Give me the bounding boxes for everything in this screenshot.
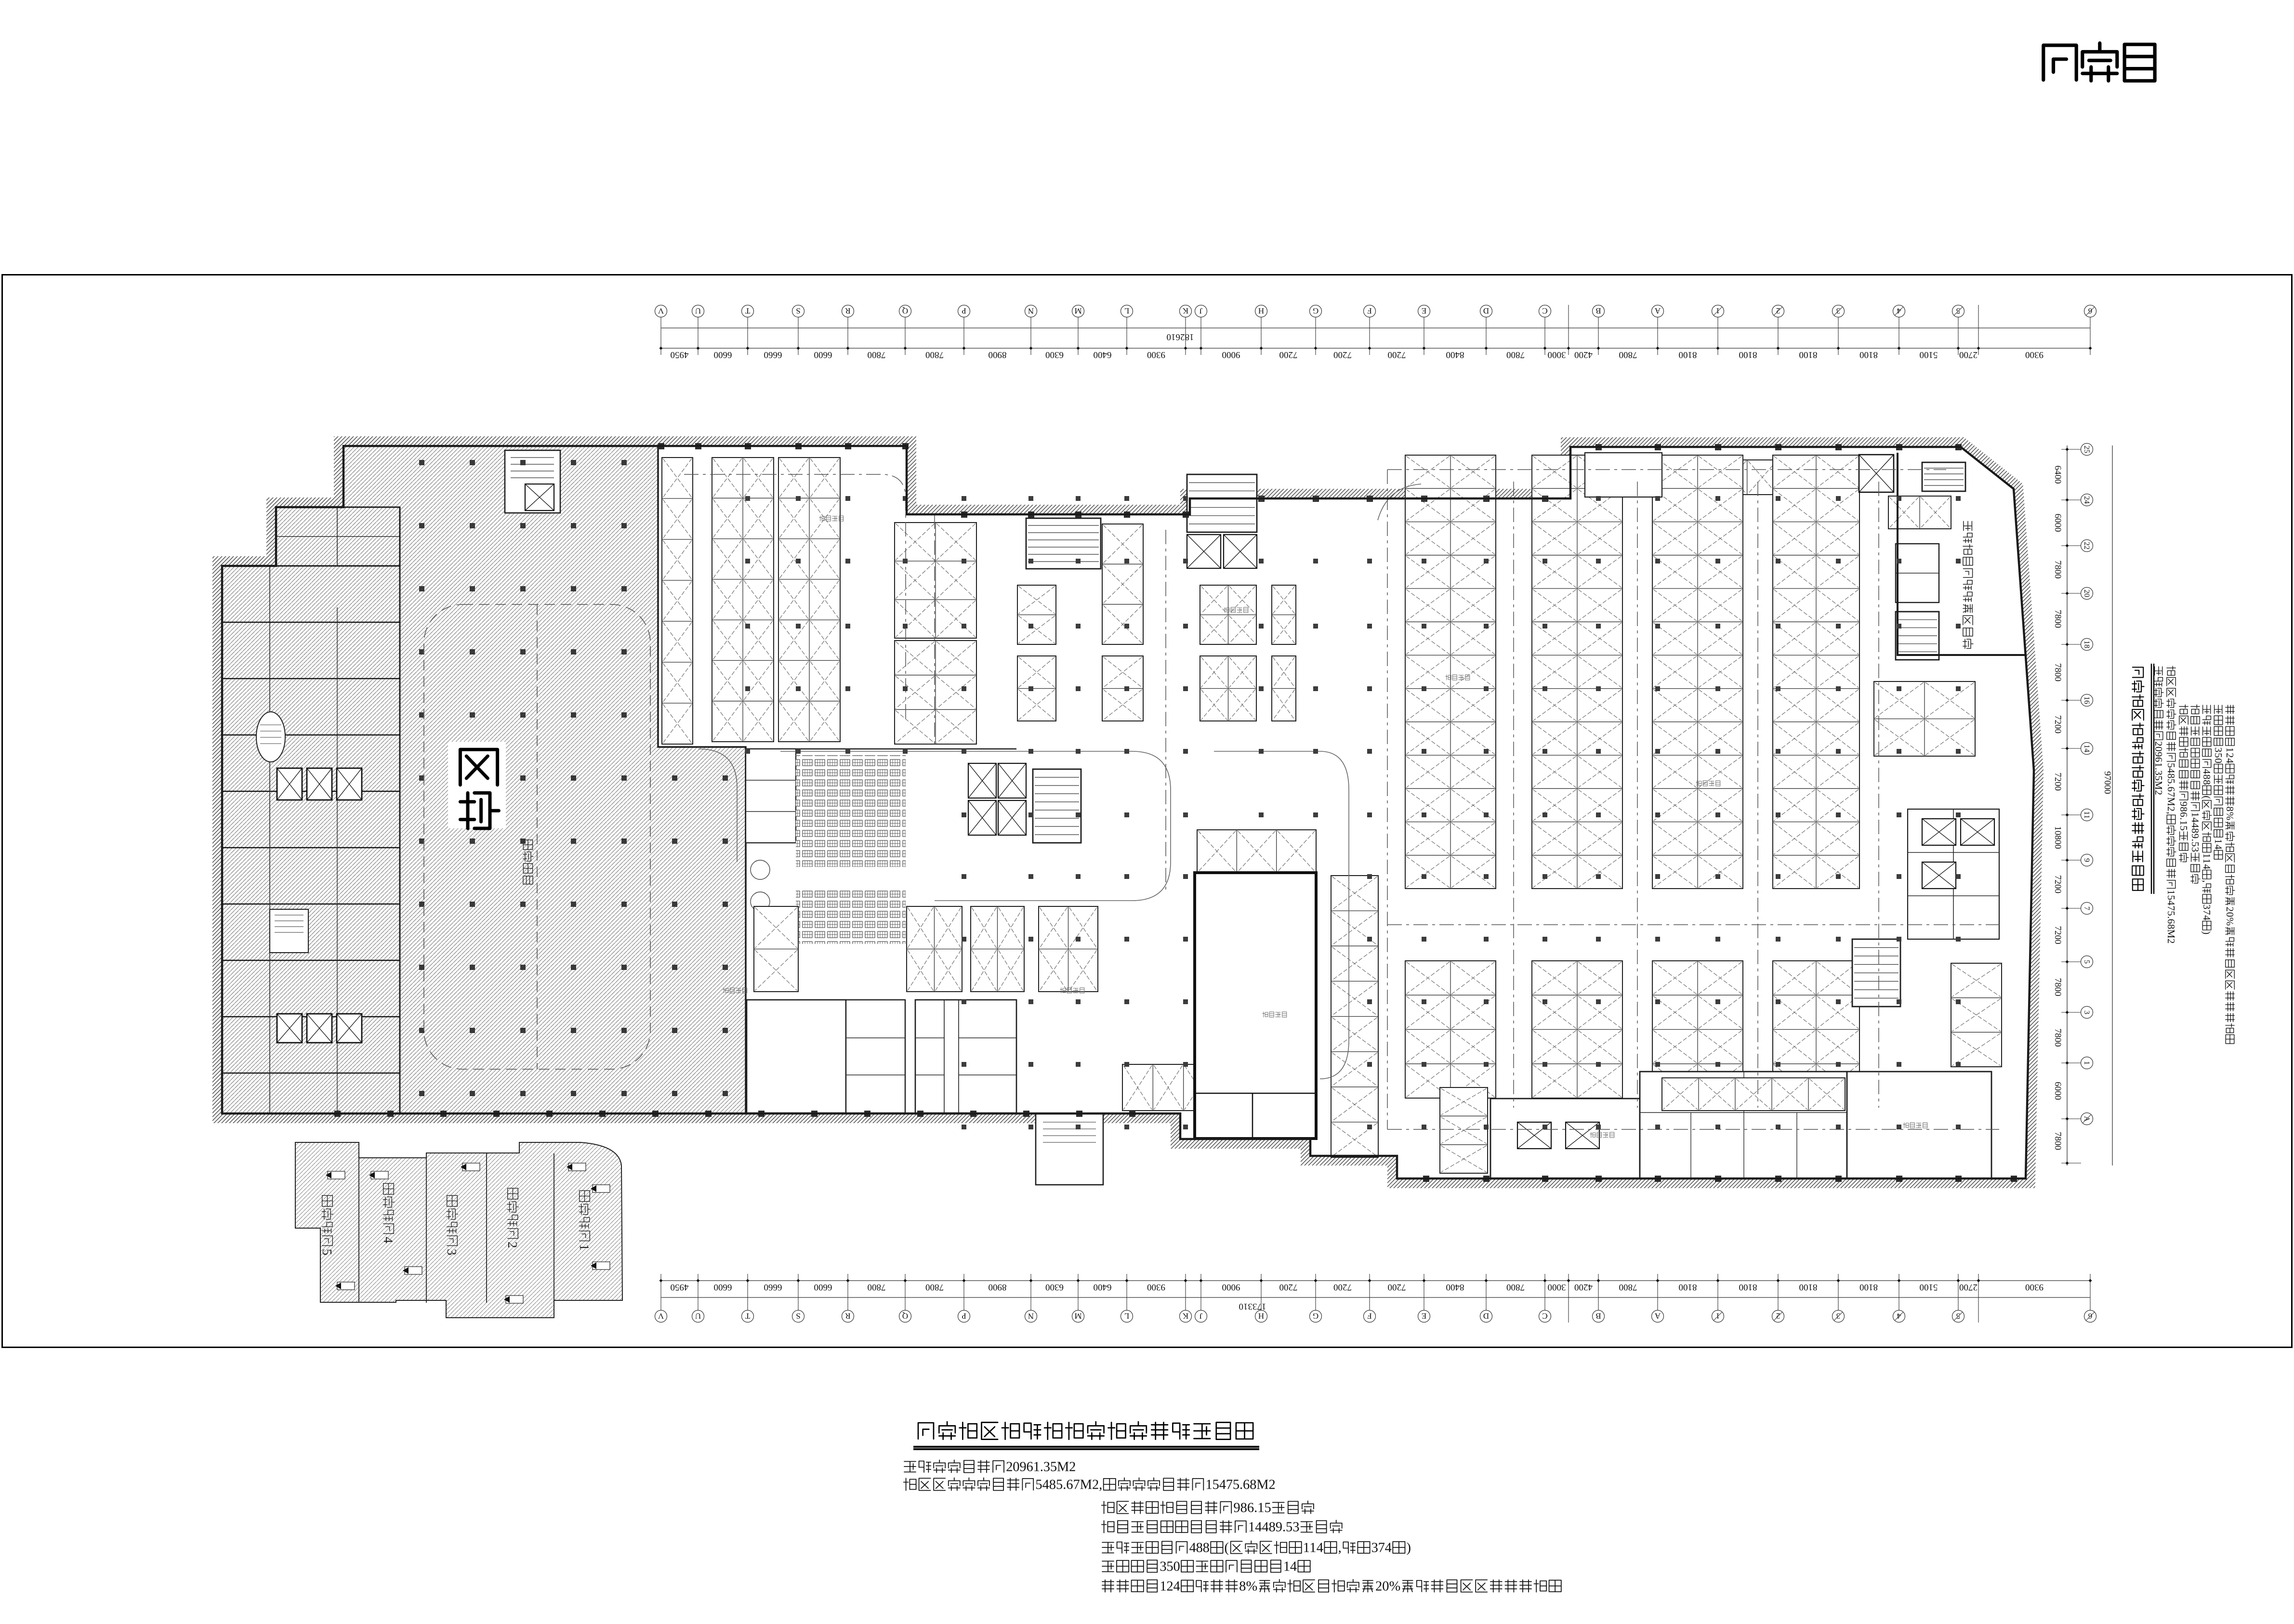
svg-text:U: U [695,1311,701,1321]
svg-text:6600: 6600 [814,350,832,360]
svg-text:H: H [1258,306,1264,315]
svg-text:7200: 7200 [1333,350,1352,360]
svg-text:1: 1 [577,1244,592,1251]
svg-text:(: ( [1225,1541,1229,1556]
svg-text:7200: 7200 [2053,875,2063,893]
svg-text:9: 9 [2083,858,2091,862]
svg-text:3: 3 [2083,1010,2091,1014]
svg-text:1: 1 [2083,1061,2091,1065]
svg-text:350: 350 [2213,747,2224,763]
svg-text:7800: 7800 [2053,610,2063,628]
svg-text:J: J [1199,306,1202,315]
svg-text:7200: 7200 [1388,350,1406,360]
svg-text:4950: 4950 [671,1282,689,1292]
svg-text:8900: 8900 [989,350,1007,360]
svg-text:D: D [1483,306,1489,315]
svg-text:G: G [1313,306,1318,315]
svg-text:K: K [1182,306,1188,315]
svg-text:7800: 7800 [2053,663,2063,681]
svg-text:5100: 5100 [1920,350,1938,360]
svg-text:A: A [1654,306,1661,315]
svg-text:173310: 173310 [1239,1301,1266,1311]
svg-text:5: 5 [320,1249,334,1256]
svg-text:7: 7 [2083,906,2091,910]
svg-text:6300: 6300 [1045,1282,1064,1292]
svg-text:6400: 6400 [1094,1282,1112,1292]
svg-text:7800: 7800 [2053,1029,2063,1047]
svg-text:25: 25 [2083,445,2091,453]
svg-text:6600: 6600 [714,350,732,360]
svg-text:15475.68M2: 15475.68M2 [2165,890,2177,944]
svg-text:15475.68M2: 15475.68M2 [1206,1478,1276,1493]
svg-text:14: 14 [1283,1559,1297,1574]
svg-text:3000: 3000 [1548,1282,1566,1292]
svg-text:2700: 2700 [1959,350,1978,360]
svg-text:2700: 2700 [1959,1282,1978,1292]
svg-text:7800: 7800 [1619,350,1637,360]
svg-text:7200: 7200 [2053,926,2063,944]
svg-text:Q: Q [902,306,908,315]
svg-text:8400: 8400 [1446,1282,1464,1292]
svg-text:V: V [658,306,664,315]
svg-text:124: 124 [1160,1579,1180,1594]
svg-text:8%: 8% [2224,807,2236,821]
svg-text:8100: 8100 [1799,1282,1818,1292]
svg-text:488: 488 [1189,1541,1210,1556]
svg-text:): ) [1407,1541,1411,1556]
svg-text:14: 14 [2083,745,2091,752]
svg-text:6000: 6000 [2053,514,2063,532]
svg-text:4: 4 [381,1237,396,1244]
svg-text:M: M [1074,1311,1081,1321]
svg-text:J: J [1199,1311,1202,1321]
svg-text:374: 374 [1371,1541,1392,1556]
svg-text:488: 488 [2201,769,2213,785]
svg-text:2: 2 [505,1242,520,1248]
svg-text:5485.67M2,: 5485.67M2, [1035,1478,1102,1493]
svg-text:7200: 7200 [2053,773,2063,791]
svg-text:7800: 7800 [868,350,886,360]
svg-text:A: A [1654,1311,1661,1321]
svg-text:V: V [658,1311,664,1321]
svg-text:11: 11 [2083,811,2091,818]
svg-text:7200: 7200 [1279,350,1298,360]
svg-text:8900: 8900 [989,1282,1007,1292]
svg-text:9000: 9000 [1222,1282,1240,1292]
svg-text:8100: 8100 [1799,350,1818,360]
svg-text:5: 5 [2083,960,2091,964]
svg-text:374: 374 [2201,904,2213,921]
svg-text:7200: 7200 [1279,1282,1298,1292]
svg-text:6400: 6400 [2053,466,2063,484]
svg-text:18: 18 [2083,641,2091,648]
svg-text:6660: 6660 [764,350,782,360]
svg-text:97000: 97000 [2102,771,2112,794]
svg-text:4200: 4200 [1574,1282,1593,1292]
svg-text:4200: 4200 [1574,350,1593,360]
svg-text:114: 114 [2201,853,2213,870]
svg-text:8%: 8% [1239,1579,1257,1594]
svg-text:F: F [1367,1311,1371,1321]
svg-text:R: R [845,1311,851,1321]
svg-text:124: 124 [2224,747,2236,764]
svg-text:9300: 9300 [2025,350,2044,360]
svg-text:6300: 6300 [1045,350,1064,360]
svg-text:8100: 8100 [1739,350,1757,360]
svg-text:S: S [796,306,800,315]
svg-text:9300: 9300 [2025,1282,2044,1292]
svg-text:E: E [1422,1311,1426,1321]
svg-text:4: 4 [1897,306,1901,315]
svg-text:114: 114 [1303,1541,1323,1556]
svg-text:16: 16 [2083,696,2091,704]
svg-text:S: S [796,1311,800,1321]
svg-text:986.15: 986.15 [2178,801,2189,831]
svg-text:20: 20 [2083,589,2091,597]
svg-text:14: 14 [2213,839,2224,850]
svg-text:182610: 182610 [1167,332,1194,342]
svg-text:7800: 7800 [2053,561,2063,579]
svg-text:7800: 7800 [1619,1282,1637,1292]
svg-text:7800: 7800 [925,1282,944,1292]
svg-text:986.15: 986.15 [1233,1501,1271,1516]
svg-text:7800: 7800 [1506,1282,1525,1292]
svg-text:6000: 6000 [2053,1082,2063,1100]
svg-text:E: E [1422,306,1426,315]
svg-text:7800: 7800 [868,1282,886,1292]
svg-text:8100: 8100 [1859,1282,1878,1292]
svg-text:20961.35M2: 20961.35M2 [1006,1460,1076,1475]
svg-text:6600: 6600 [814,1282,832,1292]
svg-text:T: T [745,306,750,315]
svg-text:7200: 7200 [1388,1282,1406,1292]
svg-text:22: 22 [2083,542,2091,550]
svg-text:5100: 5100 [1920,1282,1938,1292]
svg-text:F: F [1367,306,1371,315]
svg-text:24: 24 [2083,496,2091,504]
svg-text:3: 3 [445,1249,459,1256]
svg-text:L: L [1124,306,1129,315]
svg-text:H: H [1258,1311,1264,1321]
svg-text:8100: 8100 [1679,350,1697,360]
svg-text:7800: 7800 [2053,978,2063,996]
svg-text:C: C [1542,306,1547,315]
svg-text:14489.53: 14489.53 [2189,812,2201,852]
svg-text:B: B [1595,306,1601,315]
svg-text:): ) [2201,931,2213,934]
svg-text:7800: 7800 [925,350,944,360]
svg-text:L: L [1124,1311,1129,1321]
svg-text:,: , [1338,1541,1342,1556]
svg-text:3000: 3000 [1548,350,1566,360]
svg-text:9300: 9300 [1147,1282,1165,1292]
svg-text:C: C [1542,1311,1547,1321]
svg-text:P: P [962,1311,966,1321]
svg-text:350: 350 [1160,1559,1180,1574]
svg-text:6660: 6660 [764,1282,782,1292]
svg-text:8100: 8100 [1739,1282,1757,1292]
svg-text:9000: 9000 [1222,350,1240,360]
svg-text:8100: 8100 [1859,350,1878,360]
svg-text:7800: 7800 [2053,1132,2063,1150]
svg-text:D: D [1483,1311,1489,1321]
svg-text:4950: 4950 [671,350,689,360]
svg-text:7200: 7200 [1333,1282,1352,1292]
svg-text:,: , [2201,880,2213,882]
svg-text:8100: 8100 [1679,1282,1697,1292]
svg-text:N: N [1028,1311,1034,1321]
svg-text:P: P [962,306,966,315]
svg-text:8400: 8400 [1446,350,1464,360]
svg-text:20961.35M2: 20961.35M2 [2153,741,2164,795]
svg-text:4: 4 [1897,1311,1901,1321]
svg-text:10800: 10800 [2053,826,2063,849]
svg-text:K: K [1182,1311,1188,1321]
svg-text:R: R [845,306,851,315]
svg-text:6600: 6600 [714,1282,732,1292]
svg-text:20%: 20% [1375,1579,1400,1594]
svg-text:14489.53: 14489.53 [1248,1520,1300,1535]
svg-text:U: U [695,306,701,315]
svg-text:G: G [1313,1311,1318,1321]
svg-text:T: T [745,1311,750,1321]
svg-text:Q: Q [902,1311,908,1321]
svg-text:20%: 20% [2224,907,2236,926]
svg-text:9300: 9300 [1147,350,1165,360]
svg-text:(: ( [2201,796,2213,799]
svg-text:5485.67M2,: 5485.67M2, [2165,763,2177,814]
svg-text:7200: 7200 [2053,715,2063,733]
svg-text:B: B [1595,1311,1601,1321]
svg-text:M: M [1074,306,1081,315]
svg-text:6400: 6400 [1094,350,1112,360]
svg-text:7800: 7800 [1506,350,1525,360]
svg-text:N: N [1028,306,1034,315]
